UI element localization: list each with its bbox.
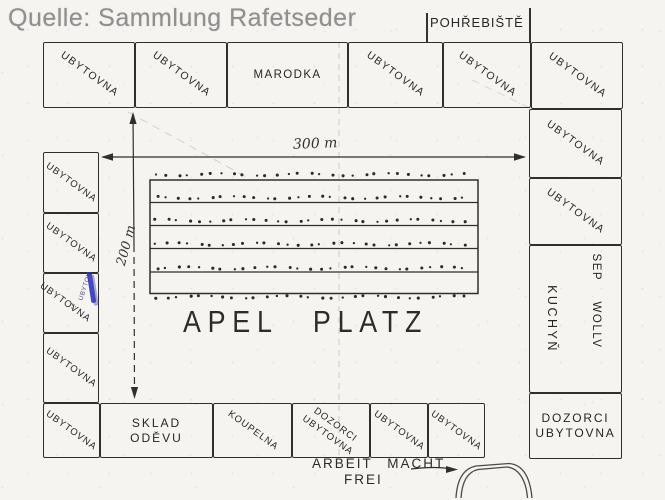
barrack-label: UBYTOVNA (429, 408, 485, 453)
infirmary: MARODKA (227, 42, 348, 108)
barrack-label: UBYTOVNA (43, 221, 99, 266)
guards-quarters-label: DOZORCIUBYTOVNA (535, 411, 615, 441)
barrack-left-1: UBYTOVNA (43, 152, 99, 213)
sep-woll-label: SEP WOLLV (590, 236, 602, 366)
clothes-line1: SKLAD (132, 416, 181, 430)
guards-line1: DOZORCI (542, 411, 610, 425)
tree-dots (153, 172, 467, 300)
cemetery-boundary-tick-left (426, 13, 428, 43)
barrack-left-2: UBYTOVNA (43, 213, 99, 273)
camp-plan-scan: Quelle: Sammlung Rafetseder POHŘEBIŠTĚ U… (0, 0, 665, 500)
barrack-top-2: UBYTOVNA (135, 42, 227, 108)
barrack-label: UBYTOVNA (149, 49, 212, 100)
bath-label: KOUPELNA (225, 408, 280, 453)
barrack-label: UBYTOVNA (57, 49, 120, 100)
guards-quarters-bottom: DOZORCIUBYTOVNA (292, 403, 370, 458)
apel-platz-label: APEL PLATZ (183, 305, 428, 340)
width-dimension-label: 300 m (293, 135, 338, 153)
source-caption: Quelle: Sammlung Rafetseder (8, 4, 356, 33)
barrack-label: UBYTOVNA (544, 186, 607, 237)
cemetery-boundary-tick-right (529, 8, 531, 43)
gate-caption-line2: FREI (344, 472, 383, 487)
barrack-top-4: UBYTOVNA (348, 42, 443, 108)
barrack-top-6: UBYTOVNA (531, 42, 623, 109)
barrack-top-5: UBYTOVNA (443, 42, 531, 108)
barrack-label: UBYTOVNA (371, 408, 427, 453)
barrack-left-4: UBYTOVNA (43, 333, 99, 403)
barrack-top-1: UBYTOVNA (43, 42, 135, 108)
barrack-bottom-6: UBYTOVNA (428, 403, 485, 458)
entrance-gate-arch (456, 464, 532, 499)
clothes-line2: ODĚVU (130, 431, 183, 445)
barrack-label: UBYTOVNA (364, 49, 427, 100)
barrack-bottom-1: UBYTOVNA (43, 403, 100, 458)
clothes-storage-label: SKLADODĚVU (130, 416, 183, 446)
barrack-bottom-5: UBYTOVNA (370, 403, 428, 458)
barrack-label: UBYTOVNA (455, 49, 518, 100)
dimension-300m (101, 153, 526, 161)
kitchen-and-wool-building (529, 245, 622, 393)
barrack-right-2: UBYTOVNA (529, 178, 622, 245)
barrack-label: UBYTOVNA (43, 346, 99, 391)
barrack-label: UBYTOVNA (43, 160, 99, 205)
crease-line-diagonal (128, 112, 248, 178)
kitchen-label: KUCHYŇ (545, 264, 559, 374)
barrack-label: UBYTOVNA (545, 50, 608, 101)
gate-caption-line1: ARBEIT MACHT (312, 456, 445, 471)
infirmary-label: MARODKA (254, 68, 322, 82)
bath-house: KOUPELNA (213, 403, 292, 458)
guards-quarters-label: DOZORCIUBYTOVNA (299, 402, 363, 458)
barrack-right-1: UBYTOVNA (529, 109, 622, 178)
cemetery-label: POHŘEBIŠTĚ (430, 15, 524, 30)
clothes-storage: SKLADODĚVU (100, 403, 213, 458)
guards-line2: UBYTOVNA (535, 426, 615, 440)
barrack-label: UBYTOVNA (44, 408, 100, 453)
apel-platz-field (150, 180, 478, 294)
guards-quarters-right: DOZORCIUBYTOVNA (529, 393, 622, 459)
barrack-label: UBYTOVNA (544, 118, 607, 169)
